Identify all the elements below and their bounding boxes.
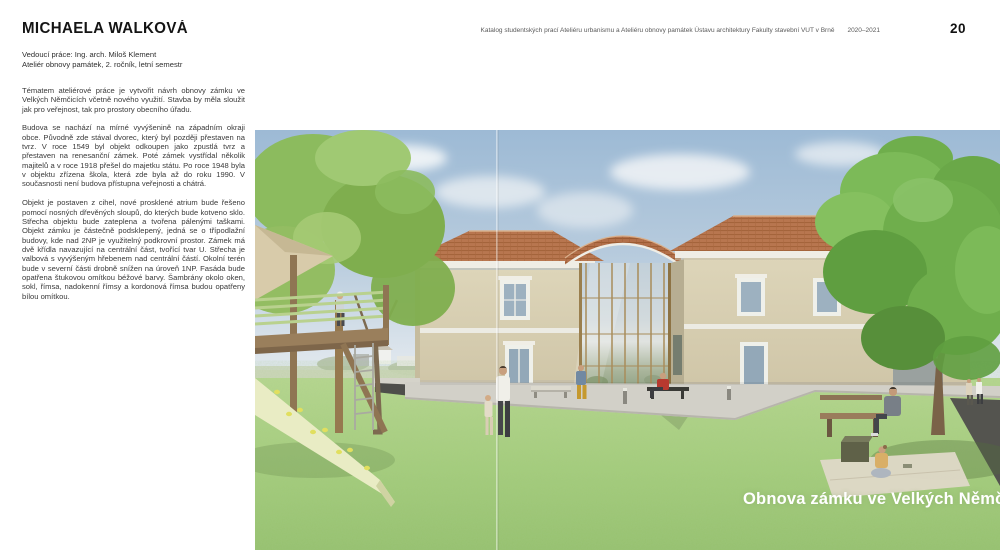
body-paragraph-3: Objekt je postaven z cihel, nové proskle… — [22, 198, 245, 301]
page-fold — [496, 130, 499, 550]
body-paragraph-2: Budova se nachází na mírné vyvýšenině na… — [22, 123, 245, 188]
page-title: MICHAELA WALKOVÁ — [22, 20, 188, 38]
project-meta: Vedoucí práce: Ing. arch. Miloš Klement … — [22, 50, 182, 69]
text-column: Tématem ateliérové práce je vytvořit náv… — [22, 86, 245, 310]
running-head-text: Katalog studentských prací Ateliéru urba… — [481, 27, 835, 34]
image-caption: Obnova zámku ve Velkých Němčicích — [743, 490, 1000, 509]
architectural-rendering: Obnova zámku ve Velkých Němčicích — [255, 130, 1000, 550]
running-head-years: 2020–2021 — [847, 27, 880, 34]
supervisor-line: Vedoucí práce: Ing. arch. Miloš Klement — [22, 50, 182, 60]
body-paragraph-1: Tématem ateliérové práce je vytvořit náv… — [22, 86, 245, 114]
running-head: Katalog studentských prací Ateliéru urba… — [250, 27, 880, 34]
studio-line: Ateliér obnovy památek, 2. ročník, letní… — [22, 60, 182, 70]
page-number: 20 — [950, 21, 986, 36]
catalog-page: MICHAELA WALKOVÁ Vedoucí práce: Ing. arc… — [0, 0, 1000, 550]
